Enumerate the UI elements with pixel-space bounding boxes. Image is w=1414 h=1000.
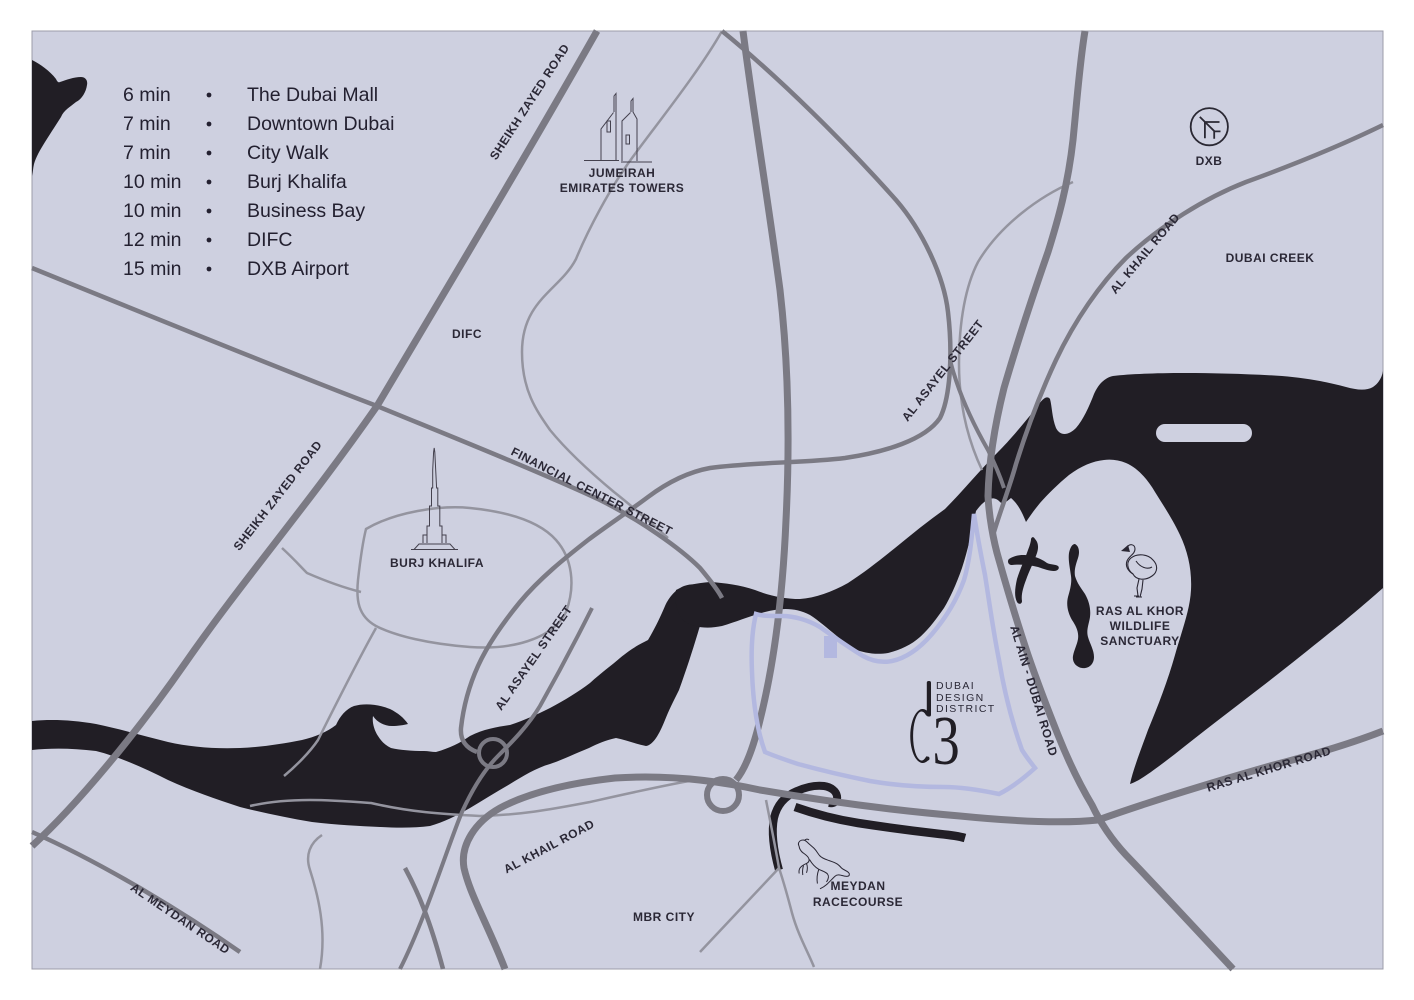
svg-text:10 min: 10 min <box>123 171 182 193</box>
svg-text:WILDLIFE: WILDLIFE <box>1110 619 1171 633</box>
svg-text:RACECOURSE: RACECOURSE <box>813 895 903 909</box>
svg-text:City Walk: City Walk <box>247 142 329 164</box>
svg-text:DUBAI: DUBAI <box>936 680 975 692</box>
svg-text:DUBAI CREEK: DUBAI CREEK <box>1226 251 1315 265</box>
svg-text:DIFC: DIFC <box>452 327 482 341</box>
svg-text:12 min: 12 min <box>123 229 182 251</box>
svg-text:MEYDAN: MEYDAN <box>830 879 885 893</box>
svg-text:Downtown Dubai: Downtown Dubai <box>247 113 394 135</box>
svg-text:Business Bay: Business Bay <box>247 200 365 222</box>
svg-text:DXB Airport: DXB Airport <box>247 258 349 280</box>
svg-text:SANCTUARY: SANCTUARY <box>1100 634 1179 648</box>
svg-text:BURJ KHALIFA: BURJ KHALIFA <box>390 556 484 570</box>
svg-text:DIFC: DIFC <box>247 229 293 251</box>
svg-text:7 min: 7 min <box>123 142 171 164</box>
svg-text:Burj Khalifa: Burj Khalifa <box>247 171 347 193</box>
svg-text:15 min: 15 min <box>123 258 182 280</box>
svg-text:EMIRATES TOWERS: EMIRATES TOWERS <box>560 181 684 195</box>
svg-text:6 min: 6 min <box>123 84 171 106</box>
svg-text:RAS AL KHOR: RAS AL KHOR <box>1096 604 1184 618</box>
svg-text:DISTRICT: DISTRICT <box>936 703 996 715</box>
svg-text:DXB: DXB <box>1196 154 1223 168</box>
svg-text:7 min: 7 min <box>123 113 171 135</box>
svg-text:MBR CITY: MBR CITY <box>633 910 695 924</box>
svg-text:10 min: 10 min <box>123 200 182 222</box>
svg-text:The Dubai Mall: The Dubai Mall <box>247 84 378 106</box>
svg-text:JUMEIRAH: JUMEIRAH <box>589 166 656 180</box>
